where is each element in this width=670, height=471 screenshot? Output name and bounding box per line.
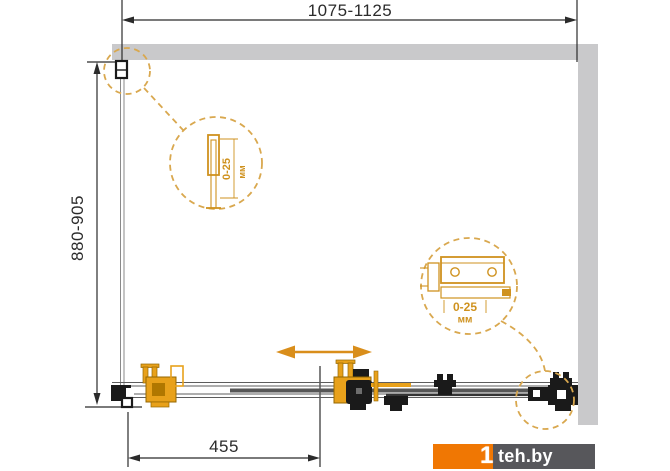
dimension-diagram: 1075-1125 880-905 455 0-25 мм 0-25 мм te… — [0, 0, 670, 471]
door-handle-bracket — [384, 396, 408, 411]
detail-left-unit-label: мм — [237, 165, 247, 178]
wall-top — [112, 44, 598, 60]
height-dimension-label: 880-905 — [68, 195, 88, 261]
left-glass-panel — [116, 60, 127, 392]
logo-site-text: teh.by — [498, 446, 553, 467]
left-end-bracket — [111, 385, 134, 407]
door-width-dimension-label: 455 — [209, 437, 239, 457]
width-dimension-label: 1075-1125 — [308, 1, 393, 21]
left-dimension-lines — [85, 62, 142, 407]
diagram-linework — [0, 0, 670, 471]
sliding-door-panel — [230, 389, 546, 397]
logo-one-glyph: 1 — [480, 442, 493, 470]
detail-right-range-label: 0-25 — [453, 300, 477, 314]
right-end-bracket — [528, 372, 578, 411]
site-watermark-logo: teh.by 1 — [433, 444, 595, 469]
wall-right — [578, 44, 598, 425]
left-roller-carriage — [141, 364, 183, 407]
logo-gray-block: teh.by — [493, 444, 595, 469]
detail-right-unit-label: мм — [458, 315, 473, 326]
detail-left-range-label: 0-25 — [221, 158, 233, 180]
slide-direction-arrow — [276, 346, 372, 359]
